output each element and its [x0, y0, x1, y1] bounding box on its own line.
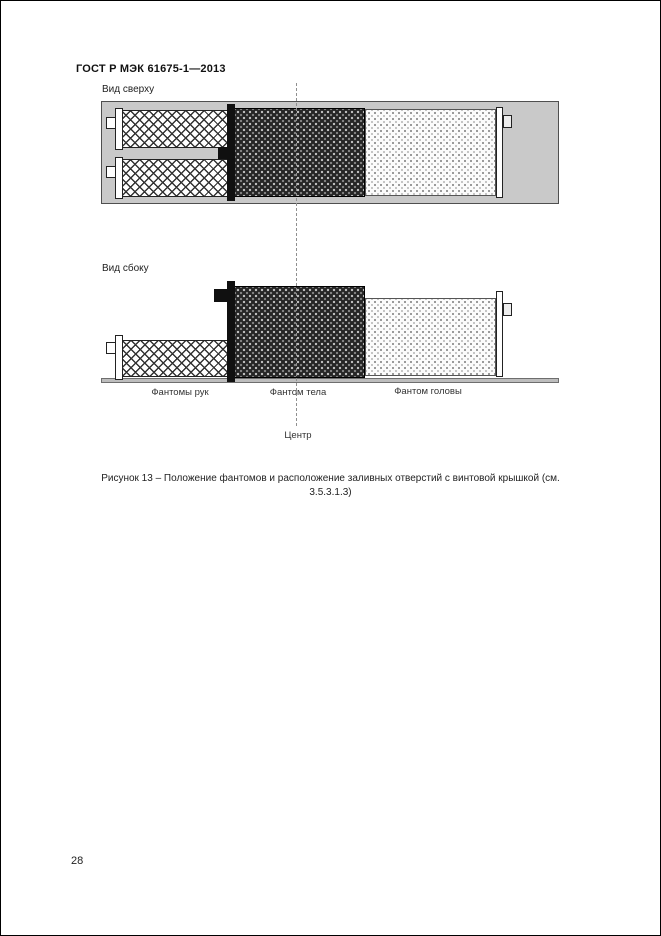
body-phantom-end-plate-side-view: [227, 281, 235, 382]
figure-caption-line1: Рисунок 13 – Положение фантомов и распол…: [31, 472, 631, 486]
arm-top-end-cap: [115, 108, 123, 150]
label-arm-phantoms: Фантомы рук: [151, 387, 208, 398]
figure-caption: Рисунок 13 – Положение фантомов и распол…: [31, 472, 631, 500]
label-body-phantom: Фантом тела: [270, 387, 327, 398]
arm-phantom-side-view: [119, 340, 228, 377]
body-fill-hole-screw-cap-side-view: [214, 289, 227, 302]
body-phantom-side-view: [234, 286, 365, 378]
head-phantom-end-plate-side-view: [496, 291, 503, 377]
head-phantom-side-view: [365, 298, 496, 376]
document-header-title: ГОСТ Р МЭК 61675-1—2013: [76, 63, 226, 75]
body-phantom-top-view: [234, 108, 365, 197]
page-number: 28: [71, 855, 83, 867]
center-axis-line: [296, 83, 297, 426]
head-phantom-top-view: [365, 109, 496, 196]
body-phantom-end-plate-top-view: [227, 104, 235, 201]
label-head-phantom: Фантом головы: [394, 386, 462, 397]
head-phantom-end-plate-top-view: [496, 107, 503, 198]
table-surface: [101, 378, 559, 383]
arm-phantom-top-view-2: [119, 159, 228, 197]
head-fill-hole-screw-cap-side-view: [503, 303, 512, 316]
head-fill-hole-screw-cap-top-view: [503, 115, 512, 128]
label-center: Центр: [284, 430, 311, 441]
document-page: ГОСТ Р МЭК 61675-1—2013 Вид сверху Вид с…: [0, 0, 661, 936]
figure-caption-line2: 3.5.3.1.3): [31, 486, 631, 500]
arm-end-cap-side-view: [115, 335, 123, 380]
side-view-label: Вид сбоку: [102, 263, 149, 274]
arm-bottom-end-cap: [115, 157, 123, 199]
arm-phantom-top-view-1: [119, 110, 228, 148]
top-view-label: Вид сверху: [102, 84, 154, 95]
